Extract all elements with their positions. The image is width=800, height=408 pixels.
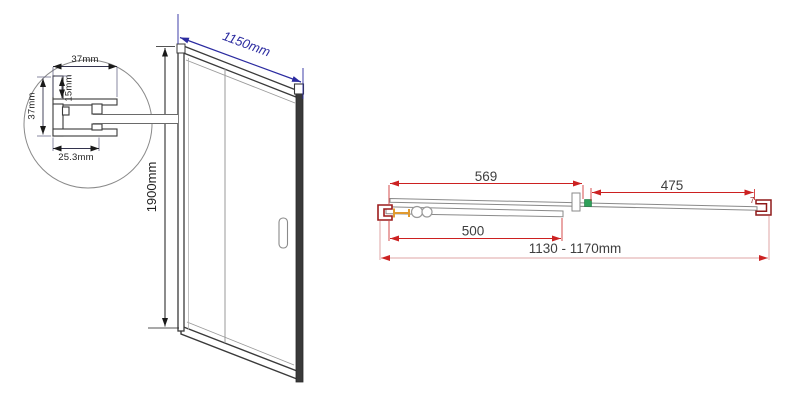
right-top-cap — [295, 84, 304, 94]
side-height-label: 37mm — [27, 92, 38, 119]
wall-bracket-right — [756, 200, 771, 215]
height-dimension: 1900mm — [144, 47, 179, 329]
overall-width-label: 1130 - 1170mm — [529, 241, 622, 256]
detail-bottom-width-dimension: 25.3mm — [53, 138, 99, 164]
profile-right-web-upper — [92, 104, 102, 114]
bottom-width-label: 25.3mm — [58, 152, 94, 163]
plan-view: 7 569 475 500 1130 - 1170mm — [378, 169, 771, 260]
door-glass-area — [184, 52, 296, 371]
drawing-canvas: 1900mm 1150mm — [0, 0, 800, 408]
panel-connector — [572, 193, 580, 211]
right-wall-profile — [296, 93, 303, 382]
right-span-label: 475 — [661, 178, 684, 193]
roller-wheel — [422, 207, 432, 217]
left-wall-profile — [178, 45, 184, 331]
door-glass-label: 500 — [462, 224, 485, 239]
glass-arm-fill — [93, 115, 178, 124]
right-span-dimension: 475 — [591, 178, 755, 201]
inset-depth-label: 15mm — [64, 74, 75, 101]
left-span-label: 569 — [475, 169, 498, 184]
left-top-cap — [177, 44, 185, 53]
green-marker — [585, 200, 592, 207]
height-dim-label: 1900mm — [144, 162, 159, 213]
technical-drawing: 1900mm 1150mm — [0, 0, 800, 408]
door-glass-dimension: 500 — [389, 218, 562, 241]
profile-notch — [63, 107, 70, 115]
profile-bottom-flange — [53, 129, 117, 136]
profile-upstand — [53, 76, 63, 100]
profile-right-web-lower — [92, 124, 102, 130]
top-width-label: 37mm — [71, 54, 98, 65]
detail-height-dimension: 37mm — [27, 77, 52, 136]
glass-panel-arm — [93, 115, 178, 124]
door-handle — [279, 218, 288, 248]
front-view: 1900mm 1150mm — [144, 14, 304, 382]
roller-wheel — [412, 207, 423, 218]
